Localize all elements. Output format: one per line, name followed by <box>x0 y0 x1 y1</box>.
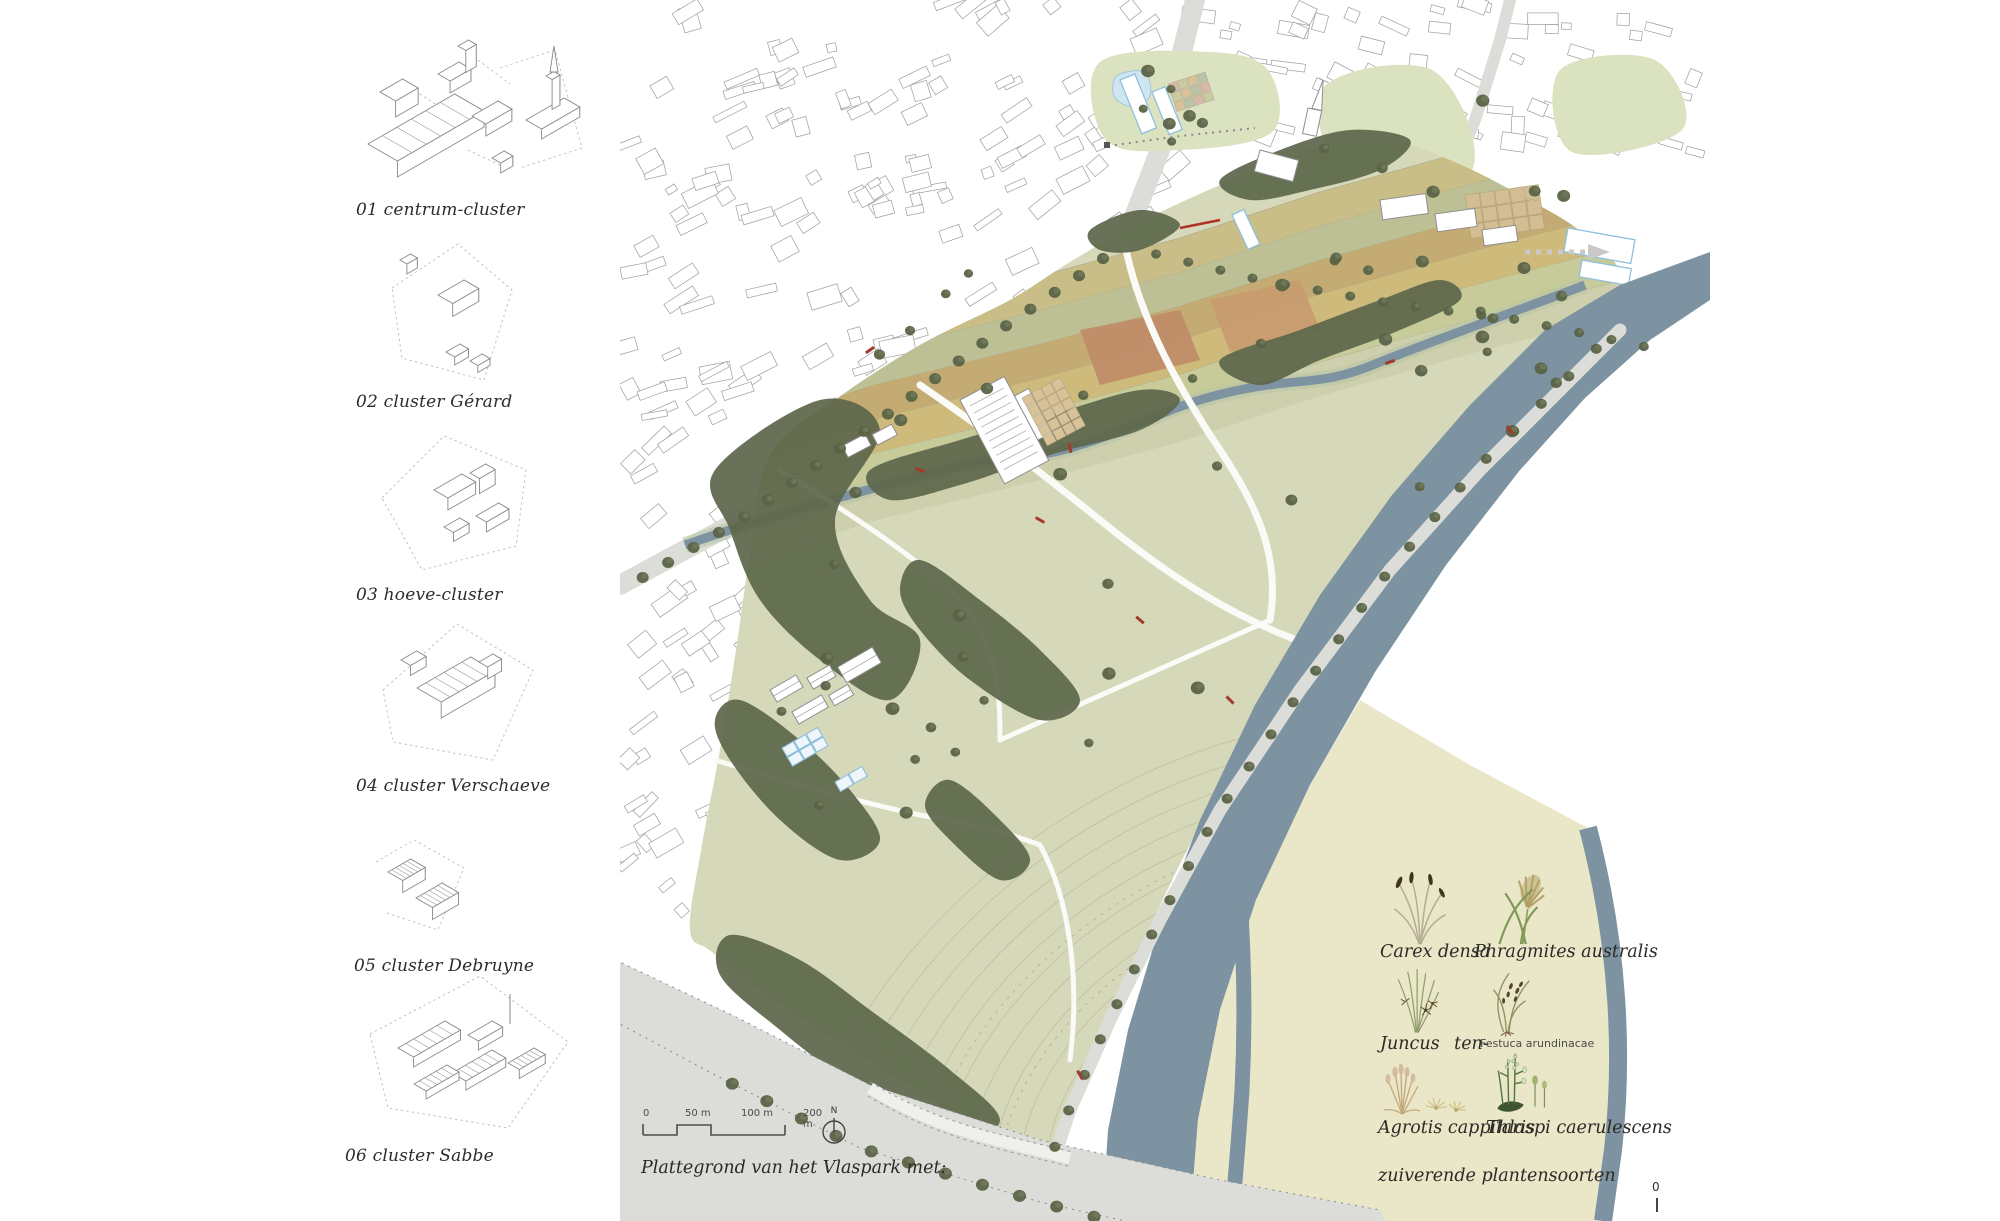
thlaspi-caerulescens-icon <box>1486 1048 1552 1116</box>
cluster-sketch-05-icon <box>368 828 486 943</box>
scale-tick-0: 0 <box>643 1108 649 1119</box>
carex-densa-icon <box>1386 870 1454 946</box>
phragmites-australis-icon <box>1476 868 1556 946</box>
sk4-svg <box>375 612 543 767</box>
agrotis-cappilaris-icon <box>1380 1062 1472 1118</box>
plant-legend-footer: zuiverende plantensoorten <box>1378 1166 1616 1187</box>
mini-scale: 0 <box>1652 1180 1682 1221</box>
cluster-sketch-02-icon <box>388 238 520 388</box>
plan-caption: Plattegrond van het Vlaspark met: <box>641 1158 946 1179</box>
north-arrow: N <box>817 1106 851 1146</box>
juncus-icon <box>1388 962 1448 1038</box>
sk1-svg <box>350 28 595 196</box>
cluster-sketch-06-icon <box>362 968 580 1136</box>
sk5-svg <box>368 828 486 943</box>
plant-name-juncus: Juncus ten- <box>1380 1034 1489 1055</box>
plant-legend: Carex densa Phragmites australis <box>1378 866 1698 1211</box>
cluster-label-04: 04 cluster Verschaeve <box>356 776 550 796</box>
mini-scale-tick <box>1656 1198 1658 1212</box>
cluster-sketch-01-icon <box>350 28 595 196</box>
scale-tick-labels: 0 50 m 100 m 200 m <box>641 1108 801 1120</box>
cluster-sketch-03-icon <box>378 428 536 578</box>
cluster-sketch-04-icon <box>375 612 543 767</box>
sk3-svg <box>378 428 536 578</box>
north-label: N <box>831 1106 838 1116</box>
festuca-arundinacae-icon <box>1478 960 1542 1038</box>
cluster-label-03: 03 hoeve-cluster <box>356 585 503 605</box>
scale-tick-100: 100 m <box>741 1108 773 1119</box>
north-arrow-icon <box>819 1116 849 1146</box>
mini-scale-label: 0 <box>1652 1180 1660 1194</box>
scale-bar-steps <box>641 1120 801 1140</box>
scale-tick-50: 50 m <box>685 1108 711 1119</box>
plant-name-thlaspi: Thlaspi caerulescens <box>1486 1118 1672 1139</box>
cluster-label-01: 01 centrum-cluster <box>356 200 525 220</box>
sk2-svg <box>388 238 520 388</box>
scale-bar: 0 50 m 100 m 200 m N <box>641 1108 871 1148</box>
cluster-label-06: 06 cluster Sabbe <box>345 1146 494 1166</box>
cluster-label-02: 02 cluster Gérard <box>356 392 512 412</box>
masterplan-sheet: 01 centrum-cluster 02 cluster Gérard 03 … <box>0 0 2000 1221</box>
sk6-svg <box>362 968 580 1136</box>
